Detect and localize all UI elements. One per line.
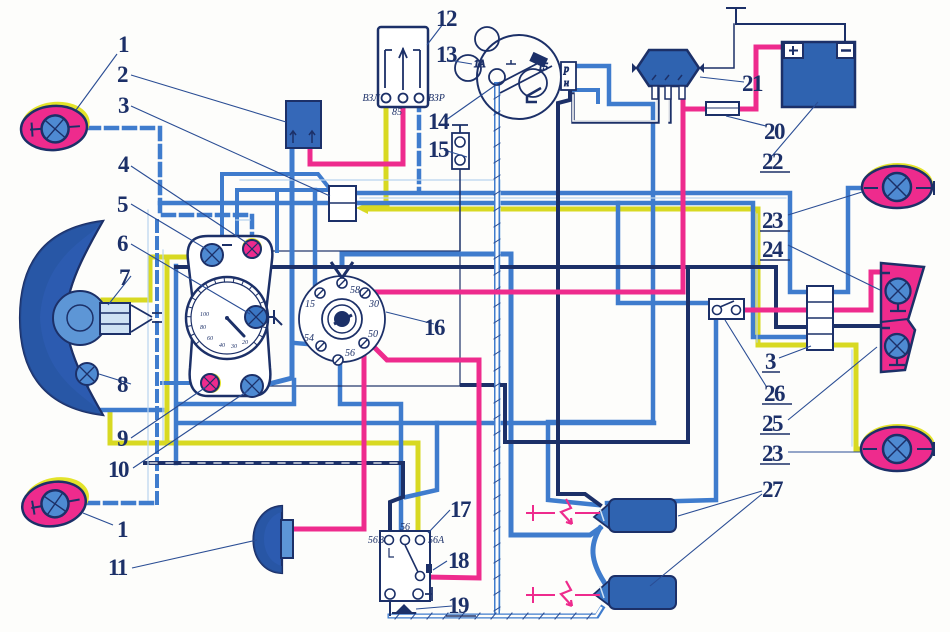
svg-text:1: 1 (117, 517, 128, 542)
svg-text:13: 13 (436, 42, 457, 67)
svg-text:21: 21 (742, 71, 763, 96)
svg-text:ВЗР: ВЗР (428, 93, 445, 104)
svg-text:20: 20 (764, 119, 785, 144)
svg-text:10: 10 (108, 457, 129, 482)
svg-text:56А: 56А (428, 535, 445, 546)
svg-text:8: 8 (117, 372, 128, 397)
svg-text:26: 26 (764, 381, 785, 406)
svg-text:16: 16 (424, 315, 445, 340)
svg-text:1: 1 (118, 32, 129, 57)
svg-text:23: 23 (762, 441, 783, 466)
svg-text:20: 20 (242, 340, 248, 346)
svg-text:80: 80 (200, 325, 206, 331)
svg-text:18: 18 (448, 548, 469, 573)
svg-text:85: 85 (392, 107, 402, 118)
svg-text:14: 14 (428, 109, 450, 134)
svg-text:100: 100 (200, 312, 209, 318)
svg-text:1А: 1А (474, 59, 486, 70)
svg-text:11: 11 (108, 555, 128, 580)
svg-text:23: 23 (762, 208, 783, 233)
svg-text:19: 19 (448, 593, 469, 618)
svg-text:12: 12 (436, 6, 457, 31)
svg-text:ВЗЛ: ВЗЛ (363, 93, 382, 104)
svg-text:6: 6 (117, 231, 128, 256)
svg-text:27: 27 (762, 477, 783, 502)
svg-text:2: 2 (117, 62, 128, 87)
svg-text:50: 50 (368, 329, 378, 340)
svg-text:54: 54 (304, 333, 314, 344)
svg-text:22: 22 (762, 149, 783, 174)
svg-text:30: 30 (230, 344, 237, 350)
svg-text:р: р (563, 64, 569, 75)
svg-text:3: 3 (118, 93, 129, 118)
svg-text:56В: 56В (368, 535, 384, 546)
svg-text:15: 15 (538, 62, 548, 73)
svg-text:3: 3 (765, 349, 776, 374)
svg-text:9: 9 (117, 426, 128, 451)
svg-text:15: 15 (305, 299, 315, 310)
svg-text:58: 58 (350, 285, 360, 296)
svg-text:7: 7 (119, 265, 130, 290)
svg-text:40: 40 (219, 342, 225, 349)
svg-text:30: 30 (368, 299, 379, 310)
svg-text:25: 25 (762, 411, 783, 436)
svg-text:17: 17 (450, 497, 471, 522)
svg-text:5: 5 (117, 192, 128, 217)
svg-text:56: 56 (345, 348, 355, 359)
svg-text:24: 24 (762, 237, 784, 262)
svg-text:56: 56 (400, 522, 410, 533)
svg-text:60: 60 (207, 336, 213, 342)
svg-text:15: 15 (428, 137, 449, 162)
svg-text:н: н (564, 78, 569, 89)
